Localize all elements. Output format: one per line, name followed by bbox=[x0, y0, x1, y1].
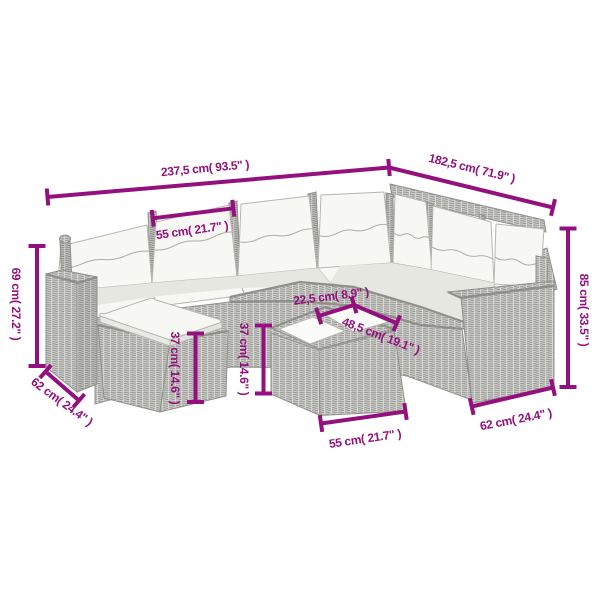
svg-text:69 cm( 27.2" ): 69 cm( 27.2" ) bbox=[9, 268, 23, 341]
svg-text:37 cm( 14.6" ): 37 cm( 14.6" ) bbox=[168, 332, 182, 405]
svg-text:37 cm( 14.6" ): 37 cm( 14.6" ) bbox=[237, 323, 251, 396]
svg-text:85 cm( 33.5" ): 85 cm( 33.5" ) bbox=[577, 274, 591, 347]
